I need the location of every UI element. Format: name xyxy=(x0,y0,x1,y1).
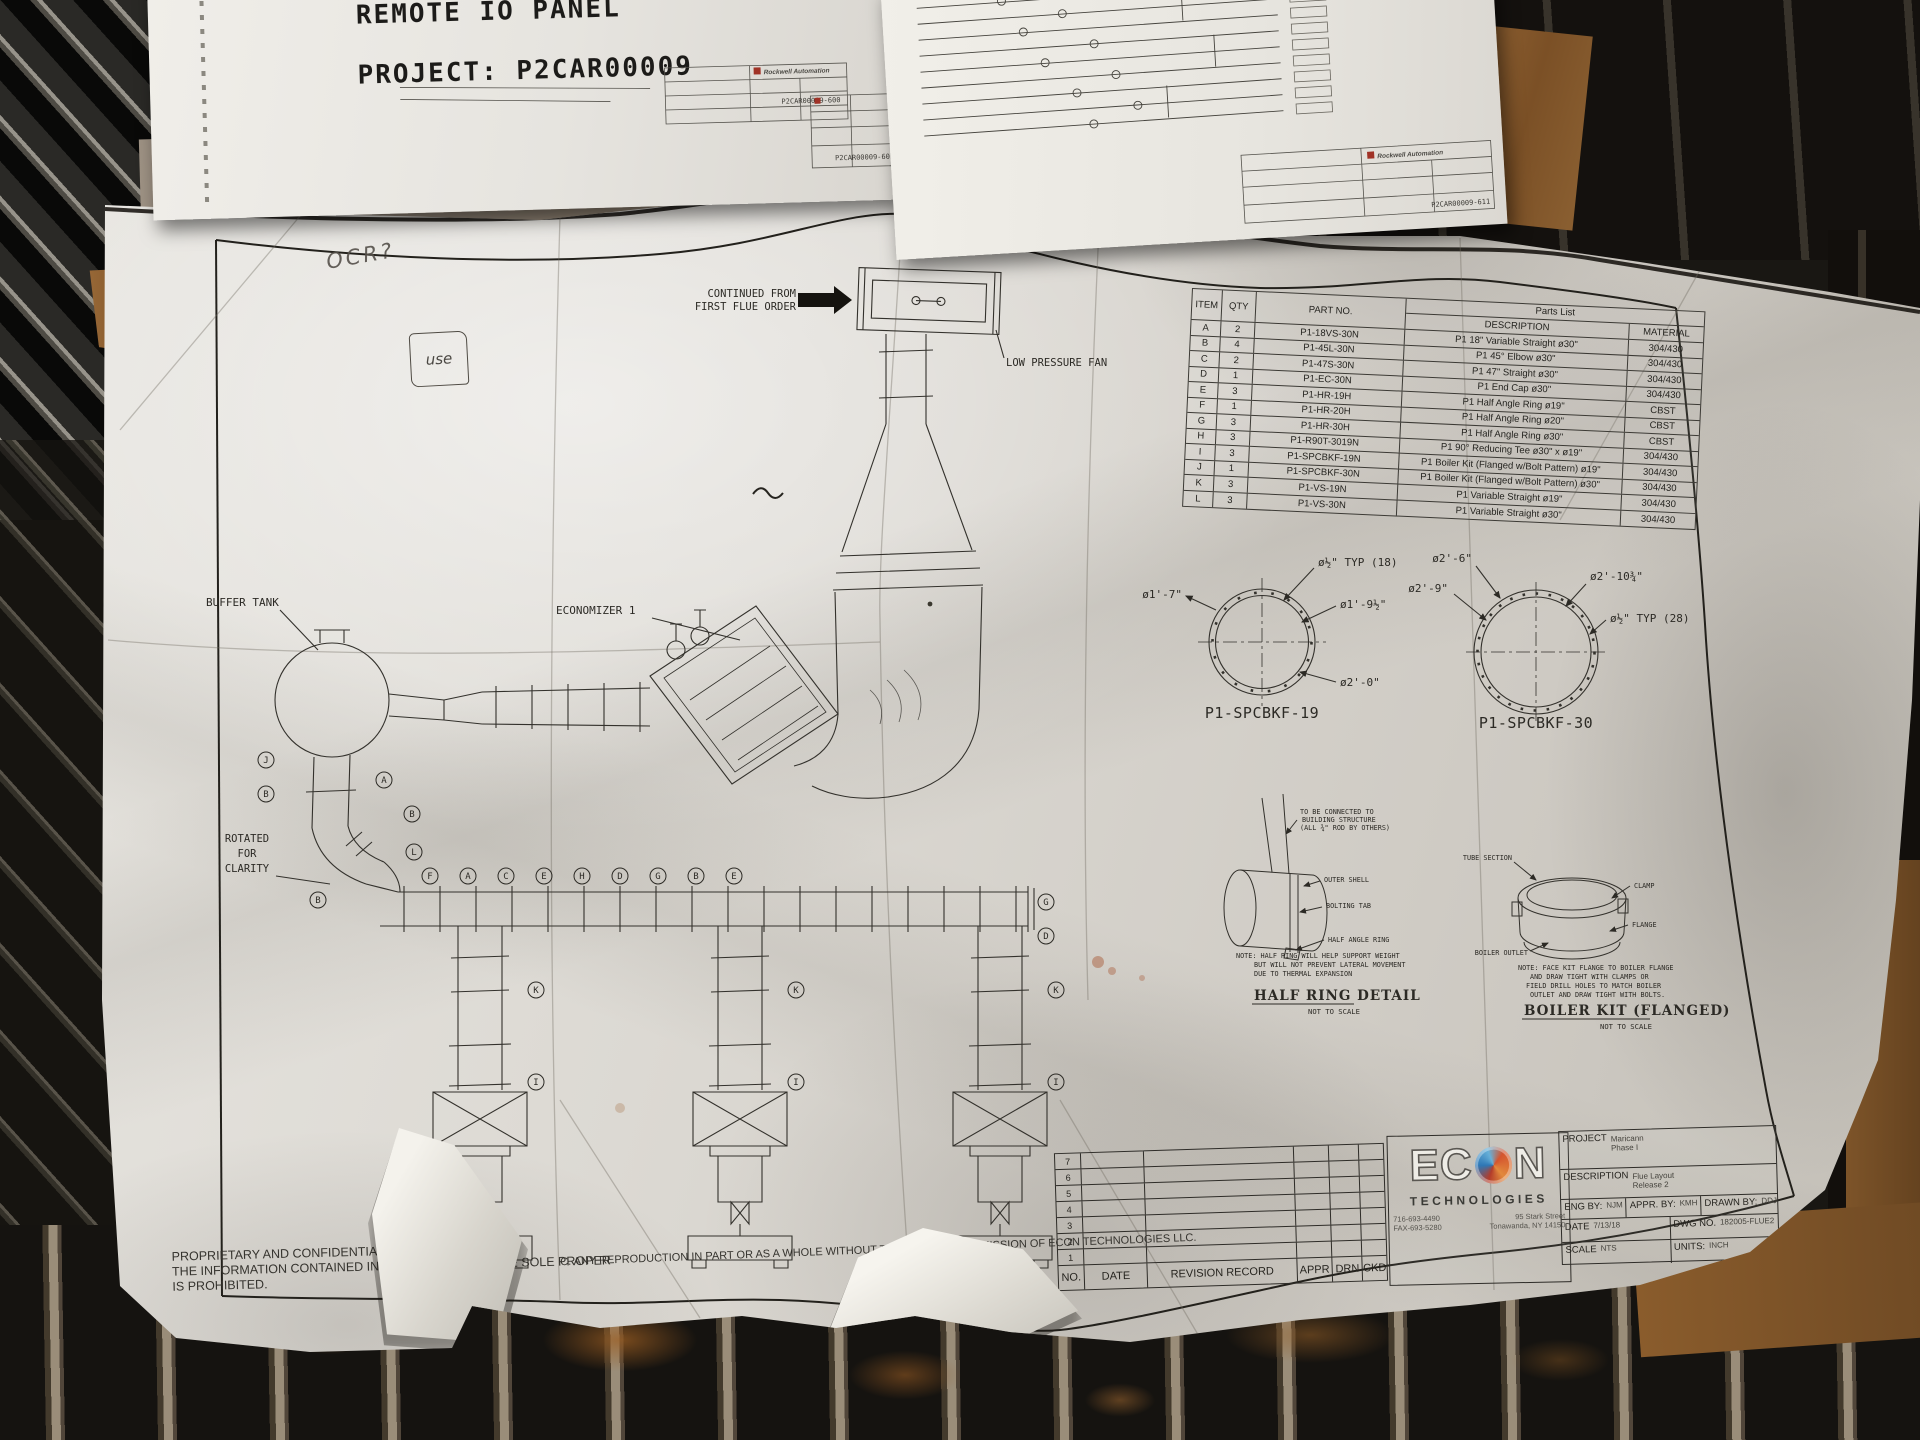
svg-text:HALF ANGLE RING: HALF ANGLE RING xyxy=(1328,936,1389,944)
wiring-diagram-linework: Rockwell Automation P2CAR00009-611 xyxy=(880,0,1507,260)
half-ring-detail: TO BE CONNECTED TO BUILDING STRUCTURE (A… xyxy=(1224,794,1421,1016)
svg-text:ø2'-0": ø2'-0" xyxy=(1340,676,1380,689)
half-ring-caption: HALF RING DETAIL xyxy=(1254,988,1421,1004)
svg-text:I: I xyxy=(793,1078,798,1088)
svg-text:B: B xyxy=(693,872,698,882)
svg-text:Rockwell Automation: Rockwell Automation xyxy=(1377,149,1443,160)
svg-text:K: K xyxy=(533,986,539,996)
econ-swirl-icon xyxy=(1474,1146,1512,1184)
title-block-info: PROJECT MaricannPhase I DESCRIPTION Flue… xyxy=(1558,1125,1780,1265)
remote-io-panel-cover-sheet: IAS / PANEL REMOTE IO PANEL PROJECT: P2C… xyxy=(147,0,899,220)
svg-text:I: I xyxy=(533,1078,538,1088)
svg-text:E: E xyxy=(731,872,736,882)
svg-text:D: D xyxy=(617,872,622,882)
svg-text:TUBE SECTION: TUBE SECTION xyxy=(1463,854,1512,862)
svg-text:P2CAR00009-611: P2CAR00009-611 xyxy=(1431,198,1490,209)
economizer-label: ECONOMIZER 1 xyxy=(556,604,635,617)
boiler-kit-caption: BOILER KIT (FLANGED) xyxy=(1524,1003,1730,1019)
svg-text:BOLTING TAB: BOLTING TAB xyxy=(1326,902,1371,910)
svg-text:K: K xyxy=(793,986,799,996)
svg-text:A: A xyxy=(381,776,387,786)
bolt-pattern-detail-30: ø2'-6" ø2'-9" ø2'-10¾" ø½" TYP (28) P1-S… xyxy=(1408,552,1689,732)
svg-text:FLANGE: FLANGE xyxy=(1632,921,1657,929)
svg-text:ø½" TYP (28): ø½" TYP (28) xyxy=(1610,612,1689,625)
wiring-diagram-sheet: Rockwell Automation P2CAR00009-611 xyxy=(880,0,1507,260)
svg-text:OUTER SHELL: OUTER SHELL xyxy=(1324,876,1369,884)
svg-text:ø1'-9½": ø1'-9½" xyxy=(1340,598,1386,611)
econ-contact-info: 716-693-4490 FAX-693-5280 95 Stark Stree… xyxy=(1393,1211,1565,1233)
svg-text:FIRST FLUE ORDER: FIRST FLUE ORDER xyxy=(695,301,797,313)
continued-arrow xyxy=(798,286,852,314)
svg-text:E: E xyxy=(541,872,546,882)
svg-text:(ALL ¾" ROD BY OTHERS): (ALL ¾" ROD BY OTHERS) xyxy=(1300,824,1390,832)
svg-text:ø2'-10¾": ø2'-10¾" xyxy=(1590,570,1643,583)
svg-text:NOTE: FACE KIT FLANGE TO BOILE: NOTE: FACE KIT FLANGE TO BOILER FLANGE xyxy=(1518,964,1674,972)
boiler-kit-detail: TUBE SECTION CLAMP FLANGE BOILER OUTLET … xyxy=(1463,854,1731,1031)
svg-text:TO BE CONNECTED TO: TO BE CONNECTED TO xyxy=(1300,808,1374,816)
svg-text:C: C xyxy=(503,872,508,882)
svg-text:B: B xyxy=(315,896,320,906)
svg-text:F: F xyxy=(427,872,432,882)
svg-text:J: J xyxy=(263,756,268,766)
svg-text:P2CAR00009-601: P2CAR00009-601 xyxy=(835,153,894,163)
svg-text:G: G xyxy=(655,872,660,882)
svg-text:B: B xyxy=(409,810,414,820)
cover-sheet-fragments: Rockwell Automation P2CAR00009-600 P2CAR… xyxy=(147,0,899,220)
grate-left xyxy=(0,440,120,1340)
svg-text:CLARITY: CLARITY xyxy=(225,863,270,875)
part-callout-balloons: J B A B L B F A C E H D G B E G D K I K xyxy=(258,752,1064,1090)
svg-text:OUTLET AND DRAW TIGHT WITH BOL: OUTLET AND DRAW TIGHT WITH BOLTS. xyxy=(1530,991,1665,999)
svg-text:L: L xyxy=(411,848,416,858)
svg-text:NOT TO SCALE: NOT TO SCALE xyxy=(1600,1022,1652,1031)
svg-text:D: D xyxy=(1043,932,1048,942)
handwritten-use-box: use xyxy=(409,331,470,388)
svg-text:ø2'-6": ø2'-6" xyxy=(1432,552,1472,565)
svg-text:H: H xyxy=(579,872,584,882)
buffer-tank-label: BUFFER TANK xyxy=(206,596,279,609)
flue-drawing-labels: CONTINUED FROM FIRST FLUE ORDER LOW PRES… xyxy=(206,288,1107,884)
svg-text:NOTE: HALF RING WILL HELP SUPP: NOTE: HALF RING WILL HELP SUPPORT WEIGHT xyxy=(1236,952,1400,960)
svg-text:ø2'-9": ø2'-9" xyxy=(1408,582,1448,595)
fan-inlet-assembly xyxy=(857,268,1001,335)
svg-text:BOILER OUTLET: BOILER OUTLET xyxy=(1475,949,1528,957)
detail-30-caption: P1-SPCBKF-30 xyxy=(1479,714,1593,732)
svg-text:DUE TO THERMAL EXPANSION: DUE TO THERMAL EXPANSION xyxy=(1254,970,1352,978)
bird-scribble xyxy=(753,488,783,498)
svg-text:FOR: FOR xyxy=(238,848,258,860)
svg-text:P2CAR00009-600: P2CAR00009-600 xyxy=(781,96,840,106)
svg-text:G: G xyxy=(1043,898,1048,908)
econ-logo: ECN xyxy=(1409,1138,1547,1193)
svg-text:CLAMP: CLAMP xyxy=(1634,882,1654,890)
economizer-unit xyxy=(650,606,838,784)
buffer-tank xyxy=(275,630,389,757)
econ-technologies-text: TECHNOLOGIES xyxy=(1410,1192,1548,1209)
detail-19-caption: P1-SPCBKF-19 xyxy=(1205,704,1319,722)
parts-list-table: ITEM QTY PART NO. Parts List DESCRIPTION… xyxy=(1182,288,1705,530)
svg-text:FIELD DRILL HOLES TO MATCH BOI: FIELD DRILL HOLES TO MATCH BOILER xyxy=(1526,982,1662,990)
svg-text:NOT TO SCALE: NOT TO SCALE xyxy=(1308,1007,1360,1016)
svg-text:BUT WILL NOT PREVENT LATERAL M: BUT WILL NOT PREVENT LATERAL MOVEMENT xyxy=(1254,961,1405,969)
rotated-for-clarity-label: ROTATED xyxy=(225,833,269,845)
svg-text:ø½" TYP (18): ø½" TYP (18) xyxy=(1318,556,1397,569)
bolt-pattern-detail-19: ø1'-7" ø½" TYP (18) ø1'-9½" ø2'-0" P1-SP… xyxy=(1142,556,1397,722)
svg-text:AND DRAW TIGHT WITH CLAMPS OR: AND DRAW TIGHT WITH CLAMPS OR xyxy=(1530,973,1650,981)
photo-of-engineering-drawings: CONTINUED FROM FIRST FLUE ORDER LOW PRES… xyxy=(0,0,1920,1440)
econ-logo-block: ECN TECHNOLOGIES 716-693-4490 FAX-693-52… xyxy=(1386,1132,1571,1286)
low-pressure-fan-label: LOW PRESSURE FAN xyxy=(1006,357,1107,369)
parts-list-rows: A 2 P1-18VS-30N P1 18" Variable Straight… xyxy=(1183,320,1703,529)
flue-isometric-drawing xyxy=(275,268,1052,1268)
svg-text:B: B xyxy=(263,790,268,800)
svg-text:I: I xyxy=(1053,1078,1058,1088)
svg-text:K: K xyxy=(1053,986,1059,996)
svg-text:Rockwell Automation: Rockwell Automation xyxy=(764,67,830,76)
svg-text:A: A xyxy=(465,872,471,882)
revision-record-table: 7 6 xyxy=(1054,1143,1388,1291)
svg-text:ø1'-7": ø1'-7" xyxy=(1142,588,1182,601)
continued-from-label: CONTINUED FROM xyxy=(707,288,796,300)
svg-text:BUILDING STRUCTURE: BUILDING STRUCTURE xyxy=(1302,816,1376,824)
